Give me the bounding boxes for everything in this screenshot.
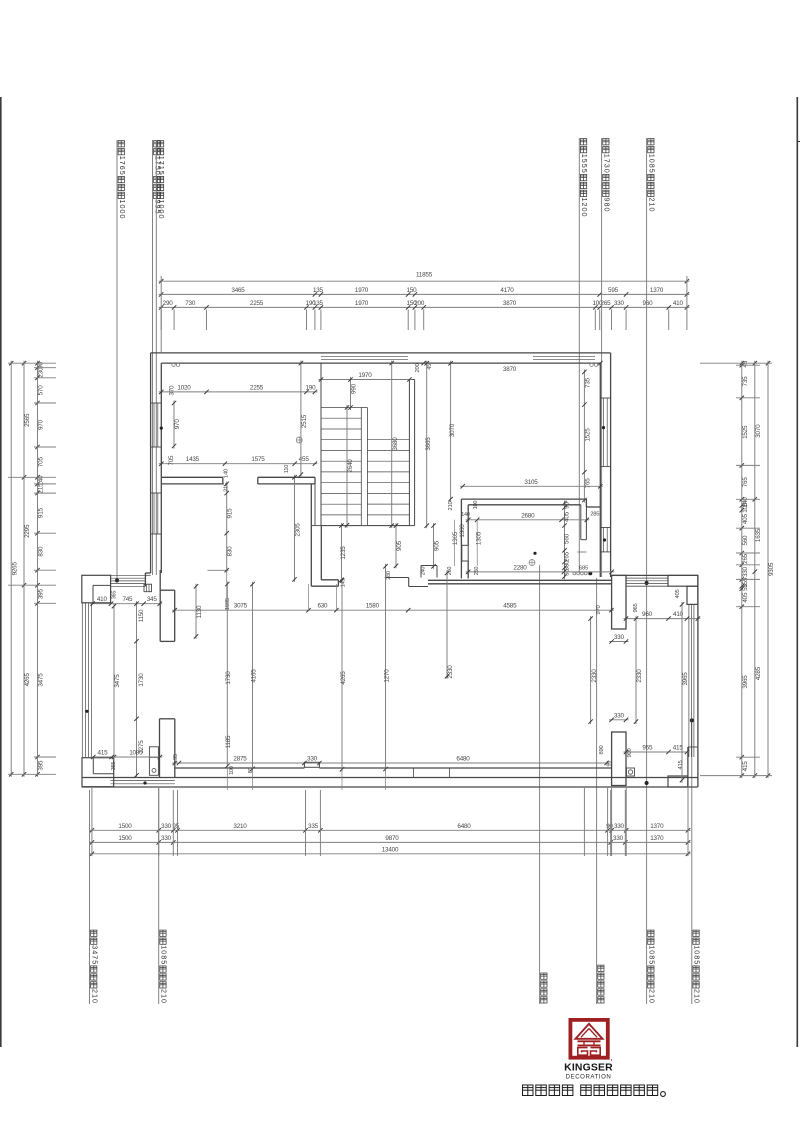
svg-text:405: 405 <box>742 514 749 525</box>
svg-text:100: 100 <box>473 501 479 510</box>
svg-text:3665: 3665 <box>425 437 432 451</box>
svg-text:200: 200 <box>414 300 425 307</box>
svg-text:1185: 1185 <box>225 735 232 748</box>
svg-text:2515: 2515 <box>301 414 308 428</box>
svg-text:905: 905 <box>396 540 403 551</box>
svg-text:210: 210 <box>160 989 169 1004</box>
svg-text:1000: 1000 <box>118 200 127 220</box>
svg-text:100: 100 <box>229 766 235 775</box>
svg-text:11855: 11855 <box>416 271 433 278</box>
svg-text:1370: 1370 <box>650 823 664 830</box>
svg-text:330: 330 <box>161 835 172 842</box>
svg-text:905: 905 <box>434 540 441 551</box>
svg-text:955: 955 <box>642 745 653 752</box>
svg-text:365: 365 <box>112 591 118 600</box>
svg-text:95: 95 <box>173 754 179 760</box>
svg-text:1730: 1730 <box>225 671 232 685</box>
svg-text:960: 960 <box>643 300 654 307</box>
svg-text:330: 330 <box>614 823 625 830</box>
svg-text:1525: 1525 <box>585 428 592 442</box>
svg-text:1085: 1085 <box>647 154 656 174</box>
svg-text:415: 415 <box>98 750 109 757</box>
svg-text:2330: 2330 <box>591 669 598 683</box>
svg-text:970: 970 <box>596 605 602 614</box>
svg-text:1370: 1370 <box>650 287 664 294</box>
svg-text:1235: 1235 <box>340 546 347 560</box>
svg-text:1200: 1200 <box>580 198 589 218</box>
svg-text:1130: 1130 <box>196 605 203 618</box>
svg-text:2875: 2875 <box>233 756 247 763</box>
svg-text:595: 595 <box>608 287 619 294</box>
svg-text:415: 415 <box>678 760 684 769</box>
svg-text:970: 970 <box>174 419 181 430</box>
svg-text:2640: 2640 <box>347 459 354 473</box>
svg-text:55: 55 <box>742 584 749 591</box>
svg-text:395: 395 <box>38 760 45 771</box>
svg-text:2255: 2255 <box>250 300 264 307</box>
svg-text:890: 890 <box>599 745 605 754</box>
svg-text:265: 265 <box>742 553 749 564</box>
svg-text:290: 290 <box>163 300 174 307</box>
svg-text:560: 560 <box>563 533 570 544</box>
svg-text:330: 330 <box>613 835 624 842</box>
svg-text:1360: 1360 <box>459 524 466 538</box>
svg-text:135: 135 <box>313 287 324 294</box>
svg-text:745: 745 <box>122 596 133 603</box>
svg-text:330: 330 <box>307 756 318 763</box>
svg-text:210: 210 <box>647 989 656 1004</box>
svg-text:1435: 1435 <box>186 456 200 463</box>
svg-text:415: 415 <box>742 761 749 772</box>
svg-text:285: 285 <box>590 512 599 518</box>
svg-text:330: 330 <box>614 300 625 307</box>
svg-text:265: 265 <box>601 300 612 307</box>
svg-text:9305: 9305 <box>768 562 775 576</box>
svg-text:980: 980 <box>602 198 611 213</box>
svg-text:970: 970 <box>38 419 45 430</box>
svg-text:410: 410 <box>97 596 108 603</box>
svg-text:990: 990 <box>351 383 358 394</box>
svg-text:1730: 1730 <box>602 154 611 174</box>
svg-text:210: 210 <box>448 501 454 510</box>
svg-text:215: 215 <box>38 483 45 494</box>
svg-text:1305: 1305 <box>476 531 483 545</box>
svg-text:4285: 4285 <box>755 666 762 680</box>
svg-text:2305: 2305 <box>295 523 302 537</box>
svg-text:735: 735 <box>585 377 592 388</box>
svg-text:9265: 9265 <box>11 562 18 576</box>
svg-text:345: 345 <box>147 596 158 603</box>
svg-text:1500: 1500 <box>118 823 132 830</box>
svg-text:3105: 3105 <box>524 479 538 486</box>
svg-text:915: 915 <box>227 508 234 519</box>
svg-text:1020: 1020 <box>177 384 191 391</box>
svg-text:1580: 1580 <box>366 603 380 610</box>
svg-text:2255: 2255 <box>250 384 264 391</box>
svg-text:260: 260 <box>447 567 453 576</box>
svg-text:1085: 1085 <box>693 945 702 965</box>
svg-text:1000: 1000 <box>157 200 166 220</box>
svg-text:110: 110 <box>284 465 290 473</box>
svg-text:570: 570 <box>38 385 45 396</box>
svg-text:DECORATION: DECORATION <box>566 1074 612 1081</box>
svg-text:330: 330 <box>614 712 625 719</box>
svg-text:6480: 6480 <box>457 823 471 830</box>
svg-text:210: 210 <box>90 989 99 1004</box>
svg-text:405: 405 <box>563 511 570 522</box>
svg-text:4585: 4585 <box>503 603 517 610</box>
svg-text:1555: 1555 <box>580 154 589 174</box>
svg-text:210: 210 <box>647 198 656 213</box>
svg-text:1085: 1085 <box>160 945 169 965</box>
svg-text:1150: 1150 <box>138 609 145 622</box>
svg-text:1635: 1635 <box>755 528 762 542</box>
svg-text:3070: 3070 <box>755 424 762 438</box>
svg-text:960: 960 <box>642 611 653 618</box>
svg-text:KINGSER: KINGSER <box>564 1062 613 1073</box>
svg-text:80: 80 <box>248 768 254 774</box>
svg-text:6480: 6480 <box>456 756 470 763</box>
svg-text:330: 330 <box>563 560 570 571</box>
svg-text:330: 330 <box>614 634 625 641</box>
svg-text:3965: 3965 <box>682 672 689 686</box>
svg-text:105: 105 <box>742 502 749 513</box>
svg-text:1970: 1970 <box>355 300 369 307</box>
svg-text:3475: 3475 <box>38 673 45 687</box>
svg-text:95: 95 <box>563 502 570 509</box>
svg-text:1595: 1595 <box>225 598 231 610</box>
svg-text:915: 915 <box>38 507 45 518</box>
svg-text:45: 45 <box>427 364 433 370</box>
svg-text:1970: 1970 <box>355 287 369 294</box>
svg-text:335: 335 <box>308 823 319 830</box>
svg-text:140: 140 <box>224 469 230 478</box>
svg-text:330: 330 <box>161 823 172 830</box>
svg-text:560: 560 <box>742 535 749 546</box>
svg-text:230: 230 <box>38 367 45 378</box>
svg-text:240: 240 <box>421 567 427 576</box>
svg-text:4170: 4170 <box>500 287 514 294</box>
svg-text:1970: 1970 <box>358 372 372 379</box>
svg-text:2295: 2295 <box>24 524 31 538</box>
svg-text:135: 135 <box>313 300 324 307</box>
svg-text:210: 210 <box>693 989 702 1004</box>
svg-text:455: 455 <box>299 456 310 463</box>
svg-text:140: 140 <box>461 512 470 518</box>
svg-text:150: 150 <box>407 287 418 294</box>
svg-text:1370: 1370 <box>650 835 664 842</box>
svg-text:190: 190 <box>306 384 317 391</box>
svg-text:3465: 3465 <box>231 287 245 294</box>
svg-text:705: 705 <box>168 455 175 466</box>
svg-text:13400: 13400 <box>382 846 399 853</box>
svg-text:1085: 1085 <box>647 945 656 965</box>
svg-text:1730: 1730 <box>138 673 145 687</box>
svg-text:370: 370 <box>169 385 176 396</box>
svg-text:3075: 3075 <box>234 603 248 610</box>
svg-text:830: 830 <box>227 546 234 557</box>
svg-text:735: 735 <box>742 376 749 387</box>
svg-text:730: 730 <box>185 300 196 307</box>
svg-text:2330: 2330 <box>636 669 643 683</box>
svg-text:3680: 3680 <box>392 437 399 451</box>
svg-text:395: 395 <box>38 589 45 600</box>
svg-text:2330: 2330 <box>447 665 454 679</box>
svg-text:405: 405 <box>742 592 749 603</box>
svg-text:90: 90 <box>606 761 612 767</box>
svg-text:3070: 3070 <box>449 423 456 437</box>
svg-text:200: 200 <box>415 363 421 372</box>
svg-text:765: 765 <box>742 477 749 488</box>
svg-text:330: 330 <box>742 566 749 577</box>
svg-text:45: 45 <box>742 360 749 367</box>
svg-text:830: 830 <box>38 546 45 557</box>
svg-text:1500: 1500 <box>118 835 132 842</box>
svg-text:3475: 3475 <box>90 945 99 965</box>
svg-text:900: 900 <box>627 748 633 757</box>
svg-text:2565: 2565 <box>24 413 31 427</box>
svg-text:2280: 2280 <box>513 564 527 571</box>
svg-text:280: 280 <box>386 571 392 580</box>
svg-text:1305: 1305 <box>452 531 459 545</box>
svg-text:1765: 1765 <box>118 156 127 176</box>
svg-text:1270: 1270 <box>384 669 391 683</box>
svg-text:3870: 3870 <box>503 300 517 307</box>
svg-text:4265: 4265 <box>24 673 31 687</box>
svg-text:3210: 3210 <box>233 823 247 830</box>
svg-text:265: 265 <box>563 551 570 562</box>
svg-text:1575: 1575 <box>251 456 265 463</box>
svg-text:705: 705 <box>38 457 45 468</box>
svg-text:365: 365 <box>111 762 117 771</box>
svg-text:415: 415 <box>673 745 684 752</box>
svg-text:405: 405 <box>675 589 681 598</box>
svg-text:4265: 4265 <box>340 671 347 685</box>
svg-text:250: 250 <box>474 567 480 576</box>
svg-text:685: 685 <box>579 565 588 571</box>
svg-text:1525: 1525 <box>742 425 749 439</box>
svg-text:965: 965 <box>633 603 639 612</box>
svg-text:410: 410 <box>673 300 684 307</box>
svg-text:1715: 1715 <box>157 156 166 176</box>
svg-text:3475: 3475 <box>114 674 121 688</box>
svg-text:630: 630 <box>317 603 328 610</box>
svg-text:2680: 2680 <box>521 512 535 519</box>
svg-text:1085: 1085 <box>129 750 143 757</box>
svg-text:3965: 3965 <box>742 675 749 689</box>
svg-text:9870: 9870 <box>385 835 399 842</box>
svg-text:3870: 3870 <box>503 366 517 373</box>
svg-text:4165: 4165 <box>251 669 258 683</box>
